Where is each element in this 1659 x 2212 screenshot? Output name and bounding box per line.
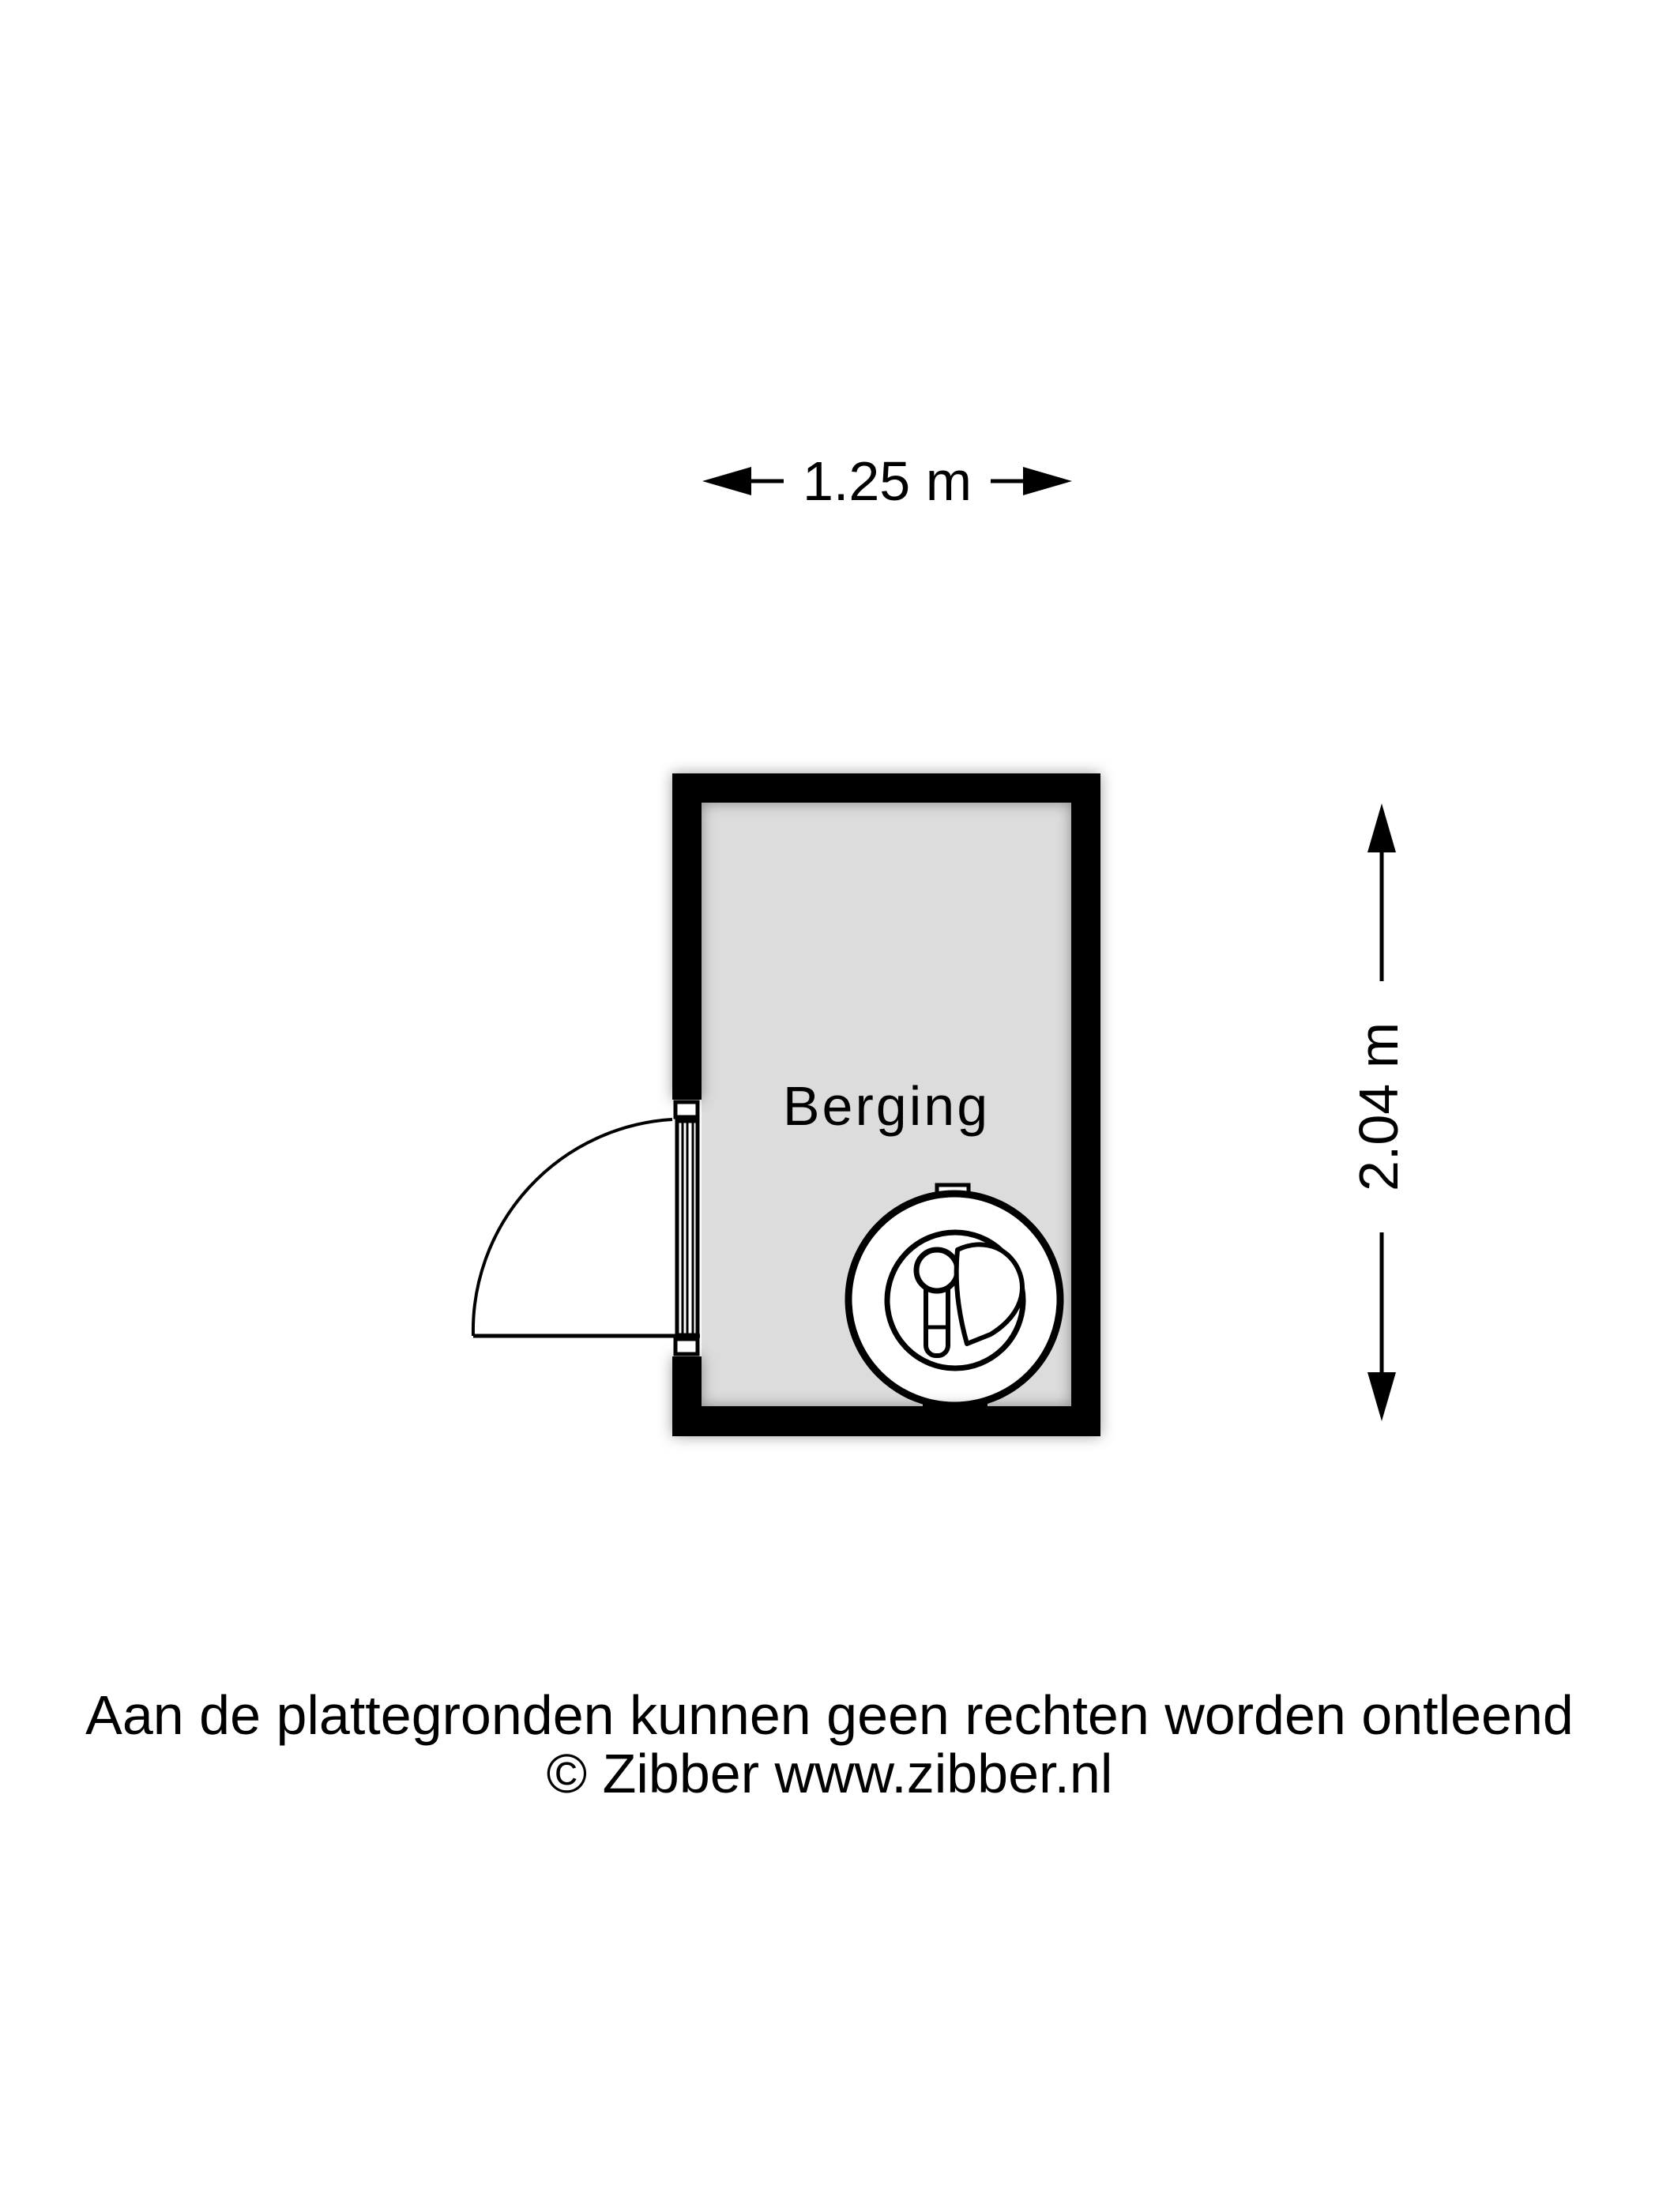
room-name-label: Berging: [689, 1077, 1084, 1135]
door-jamb-bottom: [675, 1339, 698, 1354]
height-dimension-label: 2.04 m: [1349, 909, 1408, 1304]
washing-machine-keyhole-circle: [916, 1250, 957, 1291]
door-swing-icon: [473, 1102, 700, 1354]
footer-disclaimer: Aan de plattegronden kunnen geen rechten…: [0, 1686, 1659, 1744]
footer-copyright: © Zibber www.zibber.nl: [0, 1744, 1659, 1803]
floorplan-page: 1.25 m 2.04 m Berging Aan de plattegrond…: [0, 0, 1659, 2212]
footer: Aan de plattegronden kunnen geen rechten…: [0, 1686, 1659, 1803]
door-swing-arc: [473, 1119, 672, 1336]
width-dimension-label: 1.25 m: [690, 452, 1085, 510]
dimension-arrow-down-icon: [1367, 1372, 1396, 1421]
dimension-arrow-up-icon: [1367, 803, 1396, 852]
